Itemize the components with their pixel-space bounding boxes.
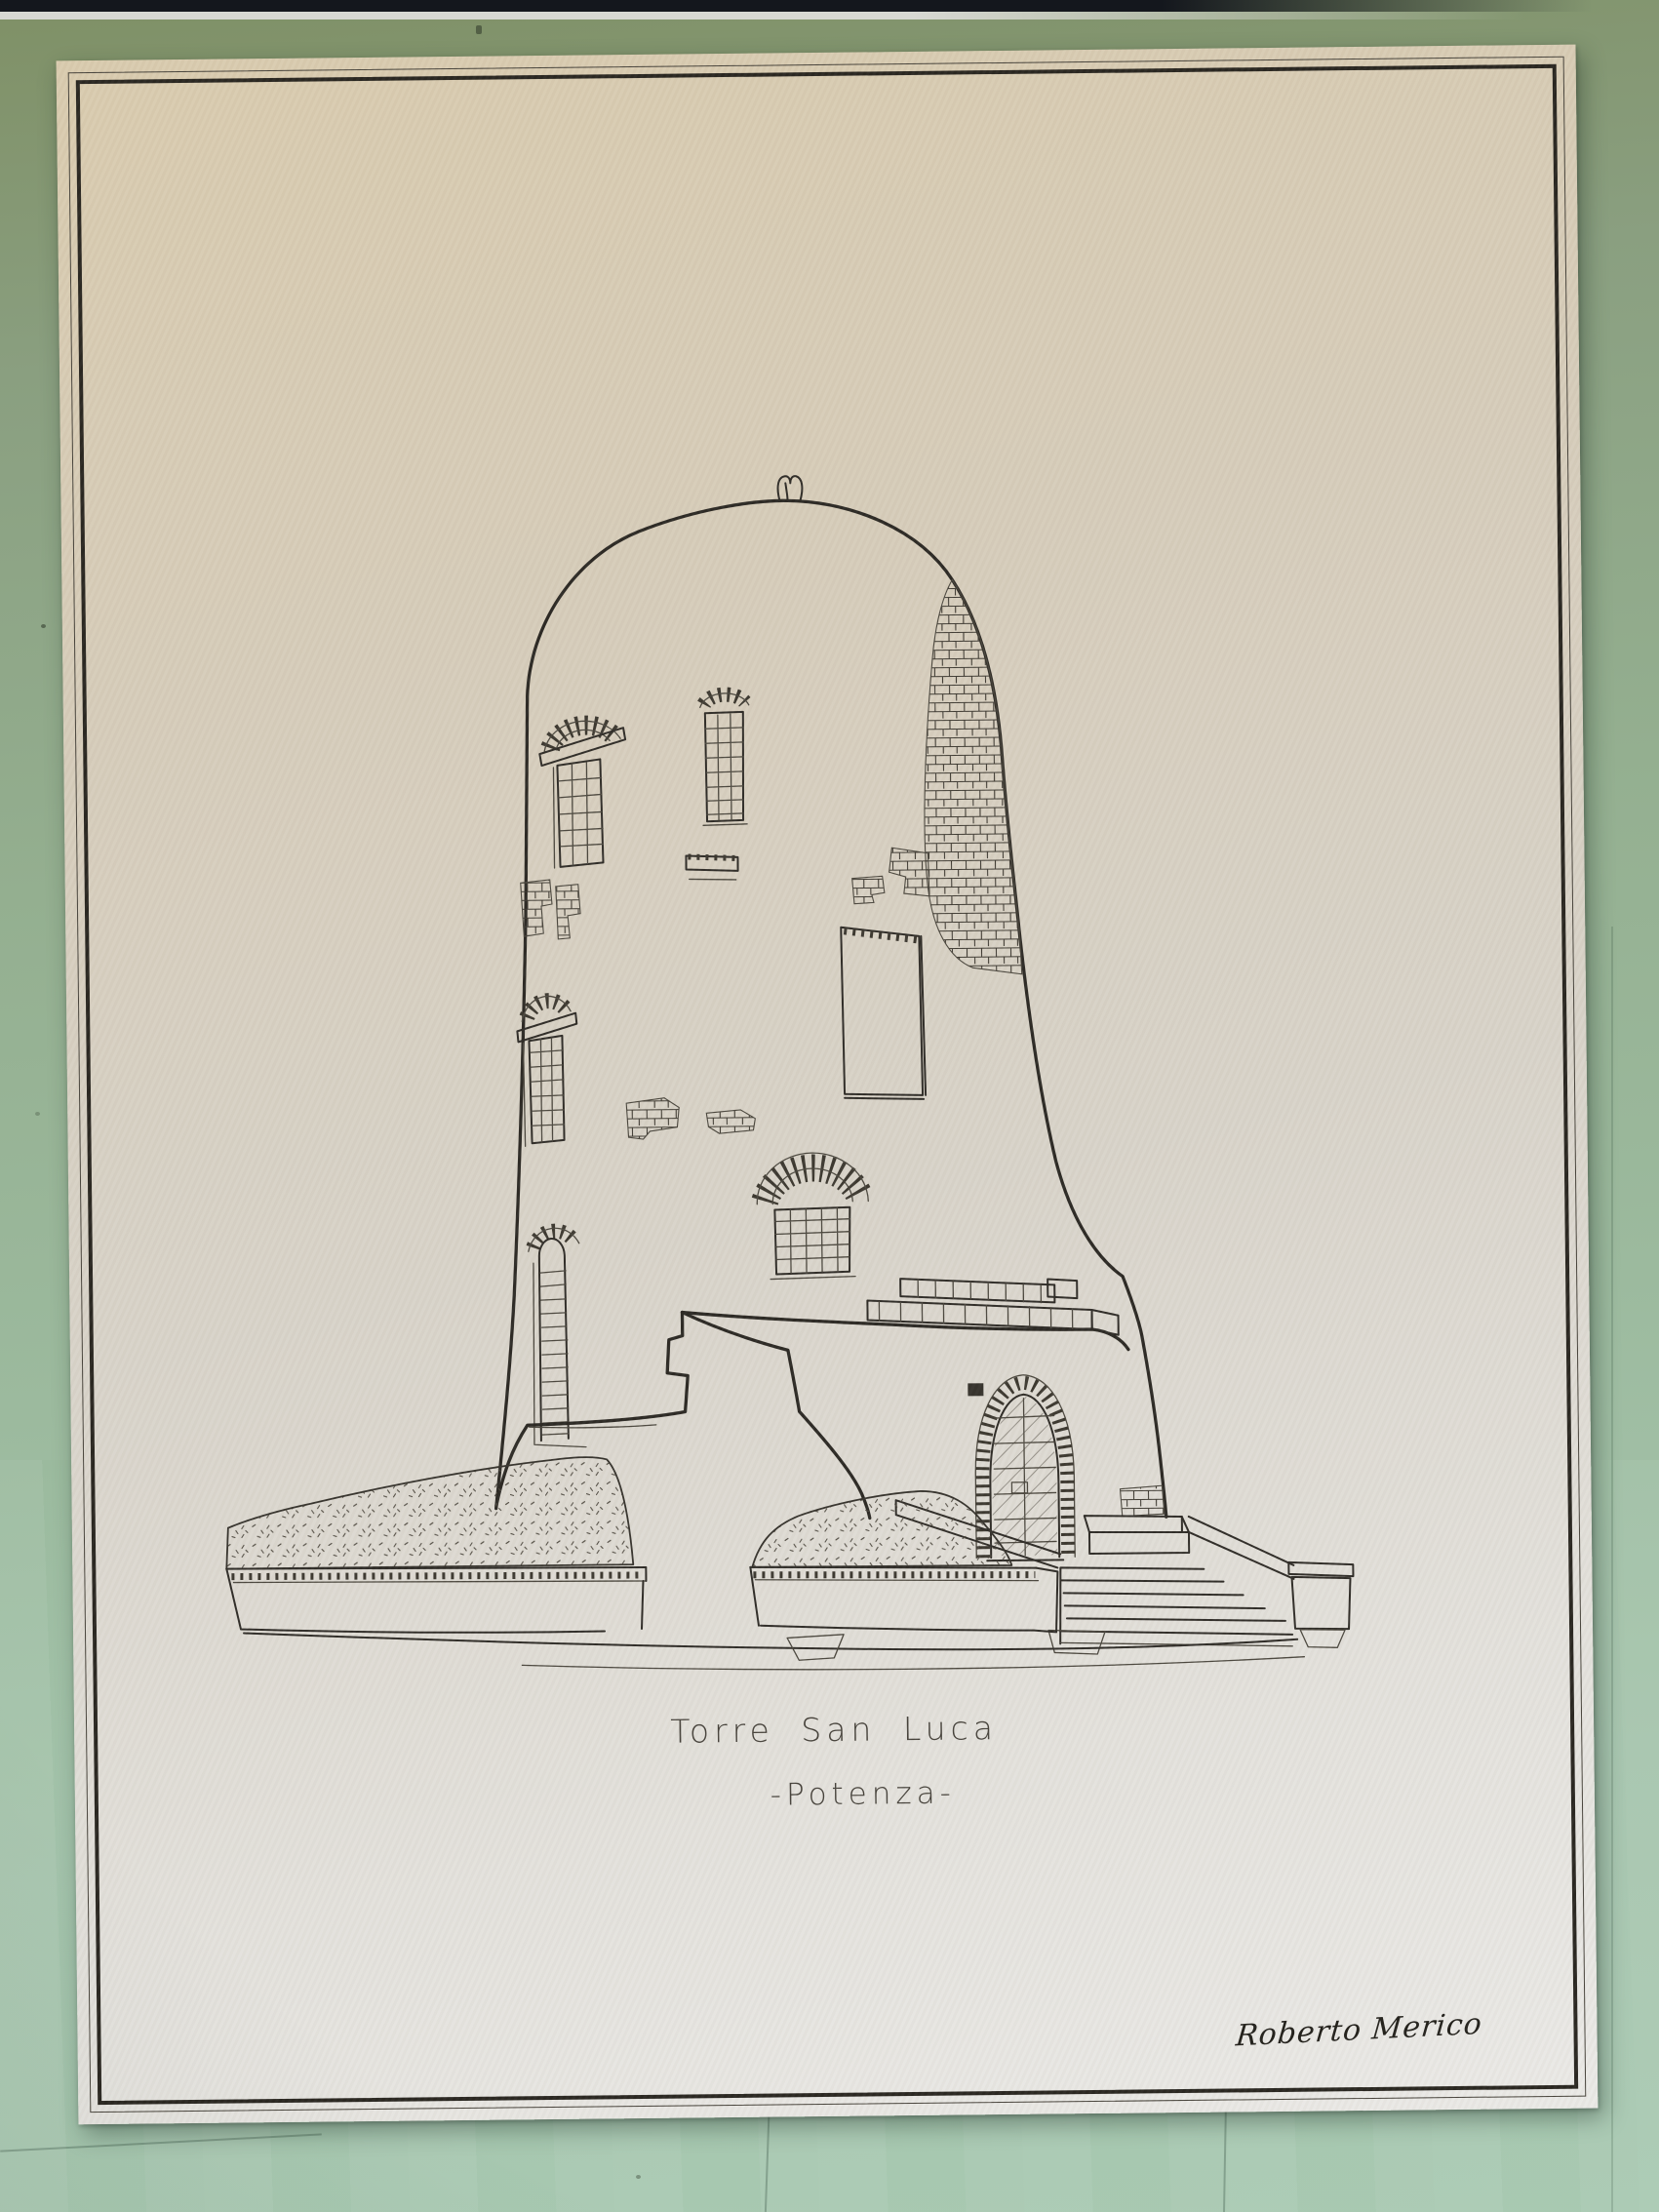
board-speck [35,1112,40,1116]
newel-pillar [1288,1561,1354,1630]
board-speck [636,2175,641,2179]
window-lower-left [529,1228,586,1447]
wall-panel [841,927,926,1100]
wall-slot [686,855,737,881]
tower-outline [485,472,1166,1524]
planter-left [225,1456,647,1636]
hedge [225,1456,633,1568]
dome-brick-band [922,579,1021,975]
ground-lines [244,1622,1304,1677]
wall-plaque [968,1383,983,1396]
railing [1182,1516,1294,1580]
photo-scene: Torre San Luca -Potenza- Roberto Merico [0,0,1659,2212]
staircase [1047,1513,1355,1654]
window-upper-left [539,721,627,868]
shelf-edge-band [0,0,1659,12]
poster: Torre San Luca -Potenza- Roberto Merico [57,45,1599,2125]
window-lower-middle [757,1152,869,1279]
shelf-edge-strip [0,12,1659,20]
hedge [752,1490,1012,1568]
board-speck [41,624,46,628]
tower-finial [777,476,802,500]
scratch-mark [1611,927,1613,2212]
board-speck [476,25,482,34]
ledge-and-parapet [682,1277,1128,1355]
brick-patches [517,577,1164,1522]
porch-slab [1085,1515,1189,1533]
window-upper-middle [700,693,750,826]
window-mid-left [517,996,578,1146]
